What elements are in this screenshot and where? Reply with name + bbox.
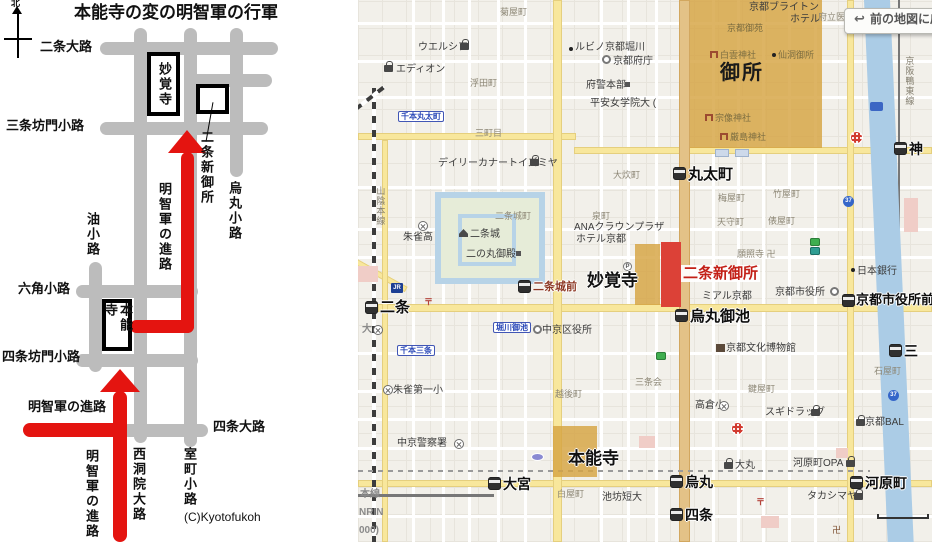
label-nijoshingosho: 二条新御所 [198,130,213,205]
government-icon [533,325,542,334]
town-label: 三町目 [475,128,502,138]
back-arrow-icon: ↩ [854,12,865,27]
post-office-icon: 〒 [424,297,433,307]
building-block [761,516,779,528]
school-icon [383,385,393,395]
road-nijo-oji [100,42,278,55]
poi-label: 京都BAL [865,417,904,429]
post-office-icon: 〒 [756,497,765,507]
label-muromachi-koji: 室町小路 [181,447,196,507]
route-north-shaft [181,152,194,333]
torii-icon [710,51,718,58]
web-map-panel[interactable]: 菊屋町京都ブライトンホテル府立医ウエルシアエディオンルビノ京都堀川京都府庁府警本… [358,0,932,542]
label-fragment: 000) [359,525,379,537]
label-nishinotoin-oji: 西洞院大路 [130,447,145,522]
school-icon [373,325,383,335]
intersection-badge[interactable]: 千本三条 [397,345,435,356]
poi-label: 京都府庁 [613,56,653,68]
building-block [639,436,655,448]
label-abura-koji: 油小路 [84,212,99,257]
shop-icon [384,65,393,72]
red-marker-icon [851,132,862,143]
station-nijo: 二条 [380,299,410,316]
bus-stop-chip [715,149,729,157]
station-kawaramachi: 河原町 [865,475,907,491]
town-label: 梅屋町 [718,193,745,203]
poi-dot-icon [851,268,855,272]
red-marker-icon [732,423,743,434]
building-block [358,266,378,282]
label-shijobomon-koji: 四条坊門小路 [2,350,80,365]
poi-dot-icon [569,47,573,51]
label-fragment: 本線 [360,489,380,501]
gosho-label: 御所 [720,62,764,85]
station-nijojo-mae: 二条城前 [533,281,577,294]
jr-logo-icon: JR [391,283,403,293]
station-icon [894,142,907,155]
poi-label: 二条城 [470,229,500,241]
label-route-west: 明智軍の進路 [28,400,106,415]
road [358,186,932,189]
school-icon [418,221,428,231]
road-marutamachi-dori [358,133,576,140]
building-block [836,448,848,458]
poi-square-icon [516,251,521,256]
screenshot: 本能寺の変の明智軍の行軍 (C)Kyotofukoh 北妙覚寺本能寺二条大路三条… [0,0,932,542]
poi-label: 朱雀高 [403,232,433,244]
station-icon [488,477,501,490]
town-label: 三条会 [635,377,662,387]
school-icon [719,401,729,411]
label-karasuma-koji: 烏丸小路 [226,181,241,241]
road [358,352,932,355]
road-shijo-dori [358,480,932,487]
poi-label: エディオン [396,64,445,76]
label-route-mid: 明智軍の進路 [156,182,171,272]
station-shijo: 四条 [685,507,713,523]
town-label: 俵屋町 [768,216,795,226]
station-karasuma-oike: 烏丸御池 [690,308,750,325]
poi-label: 宗像神社 [715,113,751,123]
station-sanjo: 三 [904,343,918,359]
station-jingu-marutamachi: 神 [909,141,923,157]
temple-manji-icon: 卍 [832,525,841,535]
shop-icon [856,419,865,426]
poi-label: 白雲神社 [720,50,756,60]
poi-label: 仙洞御所 [778,50,814,60]
intersection-badge[interactable]: 千本丸太町 [398,111,444,122]
myokakuji-area [635,244,660,305]
poi-label: デイリーカナートイズミヤ [438,158,558,170]
hankyu-line [358,470,870,472]
myokakuji-box: 妙覚寺 [147,52,180,116]
town-label: 願照寺 卍 [737,249,776,259]
poi-label: 厳島神社 [730,132,766,142]
building-block [904,198,918,232]
route-shield-icon: 37 [888,390,899,401]
station-icon [889,344,902,357]
road [412,0,415,542]
route-mid-horizontal [130,320,194,333]
bus-stop-icon [656,352,666,360]
map-scale-bar [877,514,929,519]
station-icon [365,301,378,314]
road [358,515,932,518]
station-icon [675,309,688,322]
town-label: 府立医 [818,12,845,22]
poi-label: ルビノ京都堀川 [575,42,645,54]
poi-label: タカシマヤ [807,491,857,503]
government-icon [602,55,611,64]
station-karasuma: 烏丸 [685,474,713,490]
road-rokkaku-koji [76,285,198,298]
parking-icon: P [623,262,632,271]
poi-label: 中京警察署 [397,438,447,450]
poi-label: 二の丸御殿 [466,249,516,261]
poi-label: ホテル [790,14,820,26]
station-icon [670,508,683,521]
bus-stop-chip [735,149,749,157]
torii-icon [720,133,728,140]
station-icon [670,475,683,488]
town-label: 天守町 [717,217,744,227]
museum-icon [716,344,725,352]
poi-label: 京都ブライトン [749,2,819,14]
town-label: 越後町 [555,389,582,399]
poi-label: 朱雀第一小 [393,385,443,397]
label-rokkaku-koji: 六角小路 [18,282,70,297]
town-label: 竹屋町 [773,189,800,199]
river-badge [870,102,883,111]
poi-label: 池坊短大 [602,492,642,504]
road-shijo-oji [122,424,208,437]
poi-label: 京都文化博物館 [726,343,796,355]
left-diagram-panel: 本能寺の変の明智軍の行軍 (C)Kyotofukoh 北妙覚寺本能寺二条大路三条… [0,0,345,542]
station-icon [673,167,686,180]
town-label: 菊屋町 [500,7,527,17]
town-label: 二条城町 [495,211,531,221]
town-label: 鍵屋町 [748,384,775,394]
jr-sanin-line [372,88,376,542]
left-diagram-title: 本能寺の変の明智軍の行軍 [40,3,312,23]
shop-icon [846,460,855,467]
shop-icon [530,159,539,166]
town-label: 大炊町 [613,170,640,180]
poi-label: 日本銀行 [857,266,897,278]
rail-label: 山陰本線 [375,186,385,226]
government-icon [830,287,839,296]
label-shijo-oji: 四条大路 [213,420,265,435]
station-marutamachi: 丸太町 [688,166,733,183]
label-fragment: 大 [362,324,372,336]
station-shiyakusho-mae: 京都市役所前 [856,293,932,308]
nijoshingosho-area [661,242,681,307]
town-label: 石屋町 [874,366,901,376]
poi-square-icon [625,82,630,87]
poi-label: 京都市役所 [775,287,825,299]
bus-stop-icon [810,247,820,255]
intersection-badge[interactable]: 堀川御池 [493,322,531,333]
town-label: 白屋町 [557,489,584,499]
poi-label: 河原町OPA [793,458,843,470]
poi-label: 京都御苑 [727,23,763,33]
poi-label: 平安女学院大 ( [590,98,656,110]
route-west-horizontal [23,423,127,437]
road [358,390,932,393]
poi-dot-icon [772,53,776,57]
bus-stop-icon [810,238,820,246]
nijoshingosho-label: 二条新御所 [681,265,760,282]
road-shijobomon-koji [76,354,198,367]
poi-label: ホテル京都 [576,234,626,246]
shop-icon [724,462,733,469]
station-omiya: 大宮 [503,476,531,492]
honnoji-box: 本能寺 [102,299,132,351]
label-sanjobomon-koji: 三条坊門小路 [6,119,84,134]
route-south-arrowhead [100,369,140,392]
route-south-shaft [113,391,127,542]
compass-crossbar [4,38,32,40]
label-nijo-oji: 二条大路 [40,40,92,55]
compass-needle [17,13,19,58]
poi-label: ANAクラウンプラザ [574,222,664,234]
myokakuji-label: 妙覚寺 [587,271,638,291]
poi-label: 府警本部 [586,80,626,92]
shop-icon [460,43,469,50]
honnoji-label: 本能寺 [568,449,619,469]
station-icon [850,476,863,489]
station-icon [518,280,531,293]
nijoshingosho-box [196,84,229,114]
label-fragment: NRIN [359,507,383,519]
school-icon [454,439,464,449]
shop-icon [854,493,863,500]
route-shield-icon: 37 [843,196,854,207]
road [358,418,932,421]
oval-marker-icon [531,453,544,461]
poi-label: 大丸 [735,460,755,472]
poi-label: ミアル京都 [702,291,752,303]
back-button-label: 前の地図に戻る [870,13,932,27]
label-route-south: 明智軍の進路 [83,449,98,539]
station-icon [842,294,855,307]
town-label: 浮田町 [470,78,497,88]
town-label: 泉町 [592,211,610,221]
poi-label: 中京区役所 [542,325,592,337]
shop-icon [811,409,820,416]
credit-text: (C)Kyotofukoh [184,511,261,525]
rail-label: 京阪鴨東線 [904,56,914,106]
torii-icon [705,114,713,121]
